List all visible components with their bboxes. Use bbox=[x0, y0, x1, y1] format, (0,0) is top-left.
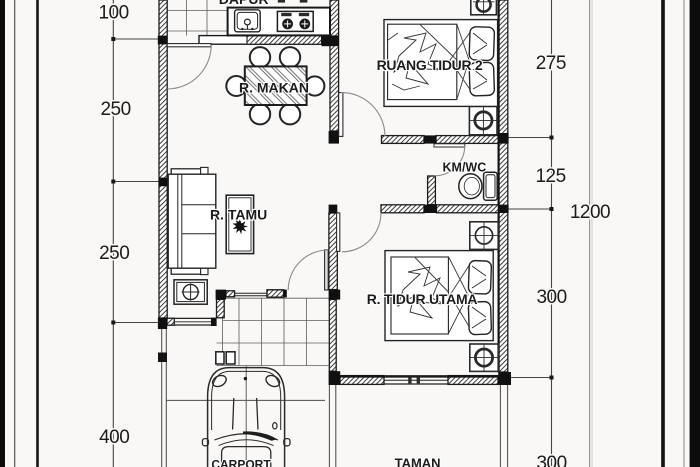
svg-text:R. TIDUR UTAMA: R. TIDUR UTAMA bbox=[367, 291, 478, 307]
svg-text:100: 100 bbox=[98, 3, 128, 24]
svg-text:RUANG TIDUR 2: RUANG TIDUR 2 bbox=[377, 57, 483, 73]
svg-text:CARPORT: CARPORT bbox=[211, 458, 271, 467]
svg-text:DAPUR: DAPUR bbox=[219, 0, 269, 7]
svg-text:300: 300 bbox=[536, 287, 566, 308]
svg-text:300: 300 bbox=[536, 453, 566, 467]
svg-text:125: 125 bbox=[535, 166, 565, 187]
svg-text:R. MAKAN: R. MAKAN bbox=[239, 80, 309, 96]
svg-text:275: 275 bbox=[536, 53, 566, 74]
svg-text:250: 250 bbox=[100, 99, 130, 120]
svg-text:250: 250 bbox=[99, 243, 129, 264]
svg-text:TAMAN: TAMAN bbox=[395, 455, 441, 467]
svg-text:400: 400 bbox=[99, 427, 129, 448]
svg-text:1200: 1200 bbox=[570, 202, 610, 223]
svg-text:KM/WC: KM/WC bbox=[443, 160, 487, 174]
svg-text:R. TAMU: R. TAMU bbox=[210, 206, 267, 222]
